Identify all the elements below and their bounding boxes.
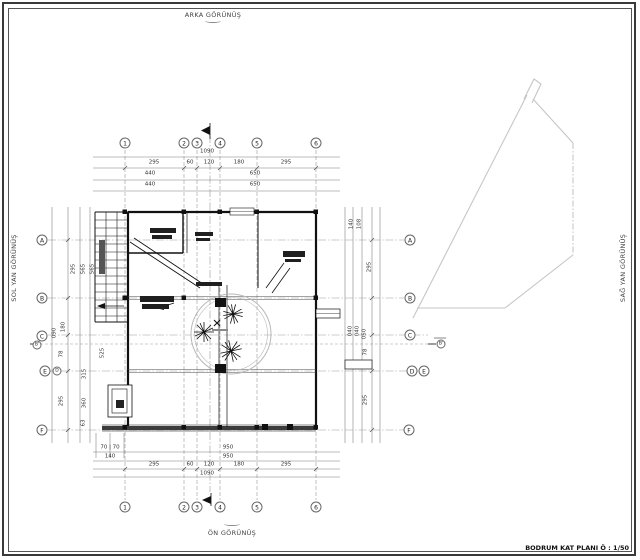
dim-right: 295 (367, 262, 373, 273)
dim-left: 78 (59, 351, 65, 358)
title-block: BODRUM KAT PLANI Ö : 1/50 (525, 544, 629, 552)
dim-right: 140 (349, 219, 355, 230)
grid-bubble-rowE-left: E (40, 366, 51, 377)
site-boundary (413, 79, 573, 318)
grid-bubble-rowD-left: D (53, 367, 62, 376)
dim-bottom: 295 (281, 462, 292, 468)
dim-top: 440 (145, 182, 156, 188)
grid-bubble-rowC-right: C (405, 330, 416, 341)
dim-left: 63 (81, 420, 87, 427)
grid-bubble-rowD-right: D (407, 366, 418, 377)
dim-bottom: 120 (204, 462, 215, 468)
dim-bottom: 60 (187, 462, 194, 468)
dim-top: 60 (187, 160, 194, 166)
label-left-view: SOL YAN GÖRÜNÜŞ (10, 234, 18, 301)
grid-bubble-col5-top: 5 (252, 138, 263, 149)
dim-left: 565 (90, 264, 96, 275)
grid-bubble-col3-top: 3 (192, 138, 203, 149)
rear-view-underline (205, 19, 221, 23)
dim-right: 040 (348, 326, 354, 337)
grid-bubble-rowA-right: A (405, 235, 416, 246)
grid-bubble-rowBprime-right: B' (437, 340, 446, 349)
grid-bubble-rowB-right: B (405, 293, 416, 304)
dim-bottom: 950 (223, 445, 234, 451)
grid-bubble-col3-bottom: 3 (192, 502, 203, 513)
grid-bubble-rowA-left: A (37, 235, 48, 246)
dim-bottom-total: 1090 (200, 471, 214, 477)
section-markers (30, 123, 446, 506)
dim-right: 050 (362, 329, 368, 340)
grid-lines (40, 135, 434, 500)
grid-bubble-rowBprime-left: B' (33, 341, 42, 350)
dim-bottom: 180 (234, 462, 245, 468)
grid-bubble-col6-bottom: 6 (311, 502, 322, 513)
grid-bubble-col2-bottom: 2 (179, 502, 190, 513)
door-swings (266, 263, 290, 293)
plant-symbols (194, 302, 245, 364)
dim-left: 180 (61, 322, 67, 333)
dim-left: 525 (100, 348, 106, 359)
dim-left: 090 (52, 328, 58, 339)
dim-top: 650 (250, 182, 261, 188)
floor-plan-svg (0, 0, 640, 560)
grid-bubble-col4-bottom: 4 (215, 502, 226, 513)
grid-bubble-rowF-left: F (37, 425, 48, 436)
grid-bubble-col1-top: 1 (120, 138, 131, 149)
dim-bottom: 140 (105, 454, 116, 460)
label-right-view: SAĞ YAN GÖRÜNÜŞ (619, 234, 627, 302)
dim-right: 108 (357, 219, 363, 230)
dim-bottom: 295 (149, 462, 160, 468)
dim-top: 295 (281, 160, 292, 166)
grid-bubble-col1-bottom: 1 (120, 502, 131, 513)
room-label-blocks (140, 228, 305, 331)
drawing-sheet: ARKA GÖRÜNÜŞ ÖN GÖRÜNÜŞ SOL YAN GÖRÜNÜŞ … (0, 0, 640, 560)
grid-bubble-rowE-right: E (419, 366, 430, 377)
dim-bottom: 950 (223, 454, 234, 460)
dim-left: 295 (59, 396, 65, 407)
grid-bubble-rowB-left: B (37, 293, 48, 304)
dim-left: 315 (82, 369, 88, 380)
dim-left: 360 (82, 398, 88, 409)
dim-top: 295 (149, 160, 160, 166)
label-front-view: ÖN GÖRÜNÜŞ (208, 529, 256, 537)
dim-top: 650 (250, 171, 261, 177)
dim-right: 78 (363, 349, 369, 356)
dim-bottom: 70 | 70 (100, 445, 119, 451)
grid-bubble-rowF-right: F (404, 425, 415, 436)
dim-top: 180 (234, 160, 245, 166)
grid-bubble-col5-bottom: 5 (252, 502, 263, 513)
label-rear-view: ARKA GÖRÜNÜŞ (185, 11, 241, 19)
grid-bubble-col6-top: 6 (311, 138, 322, 149)
dim-top: 440 (145, 171, 156, 177)
grid-bubble-col2-top: 2 (179, 138, 190, 149)
dim-left: 295 (71, 264, 77, 275)
stair-flight-diagonals (130, 238, 203, 288)
grid-bubble-col4-top: 4 (215, 138, 226, 149)
dim-top: 120 (204, 160, 215, 166)
courtyard-circle (191, 294, 271, 374)
dim-top-total: 1090 (200, 149, 214, 155)
dim-right: 040 (355, 326, 361, 337)
dim-left: 565 (81, 264, 87, 275)
dim-right: 295 (363, 395, 369, 406)
front-view-underline (224, 522, 240, 526)
